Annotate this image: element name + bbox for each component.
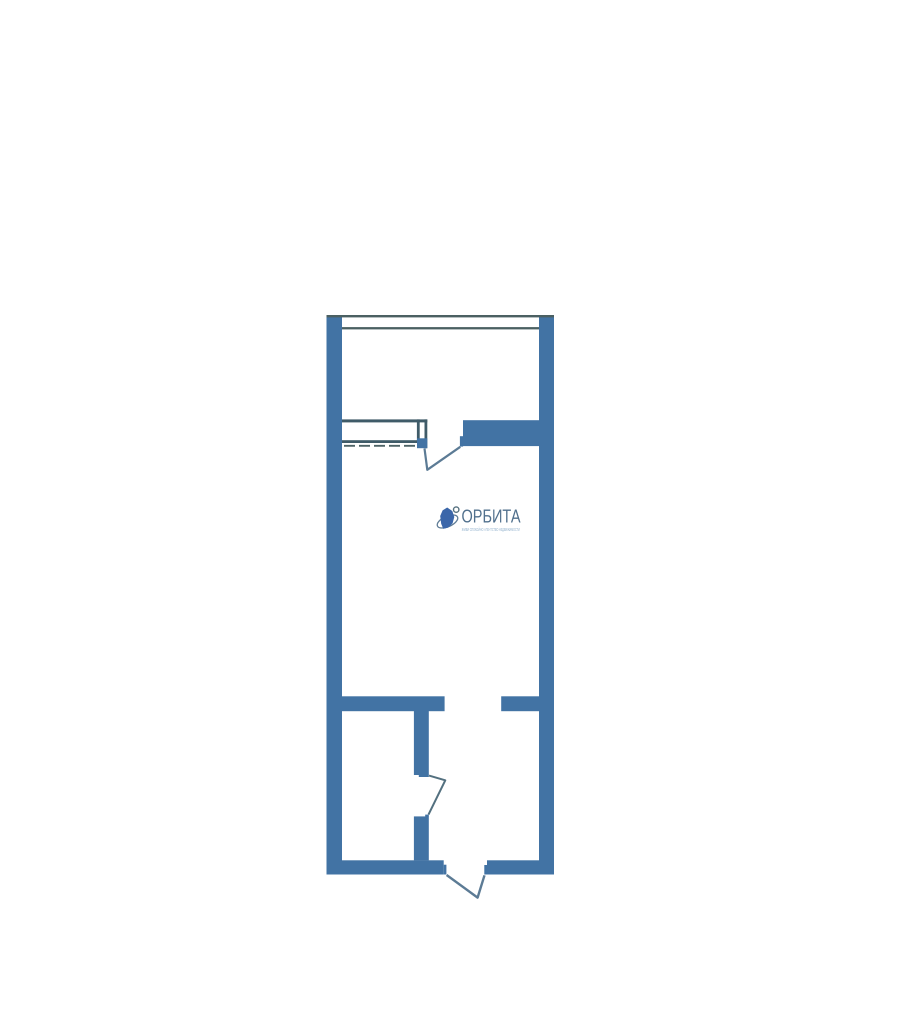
svg-text:ОРБИТА: ОРБИТА <box>462 507 521 528</box>
